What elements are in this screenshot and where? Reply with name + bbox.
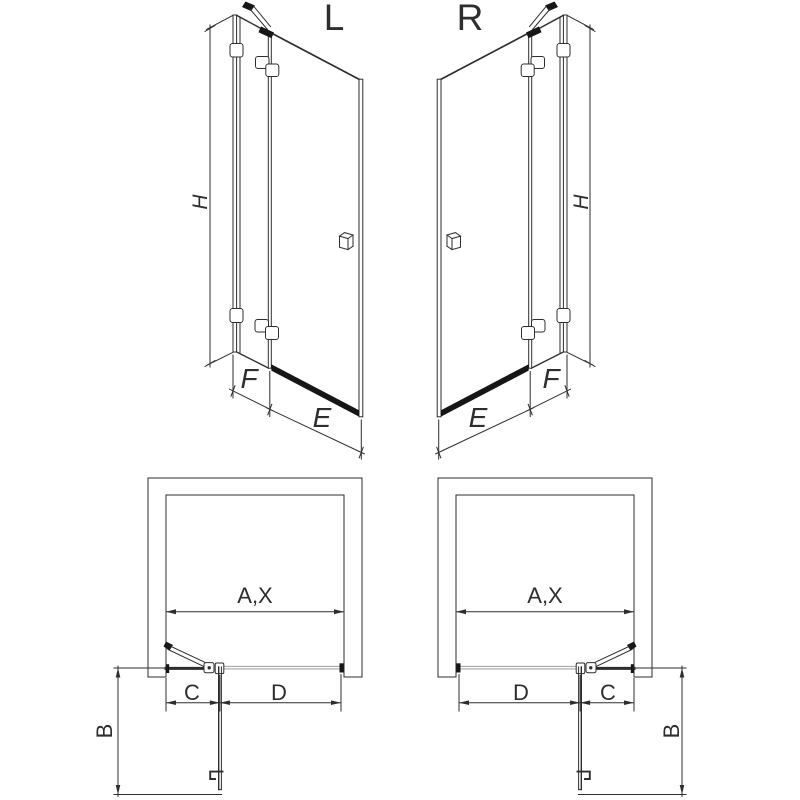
variant-label-right: R: [457, 0, 484, 38]
elevation-right-drawing: [436, 2, 595, 460]
fixed-dim-label-left-plan: C: [184, 680, 200, 705]
fixed-dim-label-right-plan: C: [600, 680, 616, 705]
plan-left-walls: [148, 478, 362, 677]
swing-dim-label-left-plan: B: [92, 724, 117, 739]
variant-label-left: L: [324, 0, 345, 38]
swing-dim-label-right-plan: B: [659, 724, 684, 739]
opening-dim-label-right-plan: A,X: [527, 583, 563, 608]
door-handle-icon: [340, 233, 354, 250]
door-dim-label-right-plan: D: [513, 680, 529, 705]
fixed-dim-label-right: F: [542, 363, 561, 394]
plan-right-walls: [438, 478, 652, 677]
door-dim-label-left-plan: D: [271, 680, 287, 705]
height-dim-label-right: H: [570, 194, 593, 210]
fixed-dim-label-left: F: [240, 363, 259, 394]
technical-drawing-canvas: L R H H F E F E A,X A,X C D D C B B: [0, 0, 800, 800]
door-dim-label-left: E: [313, 402, 332, 433]
height-dim-label-left: H: [189, 194, 212, 210]
door-dim-label-right: E: [469, 402, 488, 433]
opening-dim-label-left-plan: A,X: [237, 583, 273, 608]
elevation-left-drawing: [205, 2, 364, 460]
